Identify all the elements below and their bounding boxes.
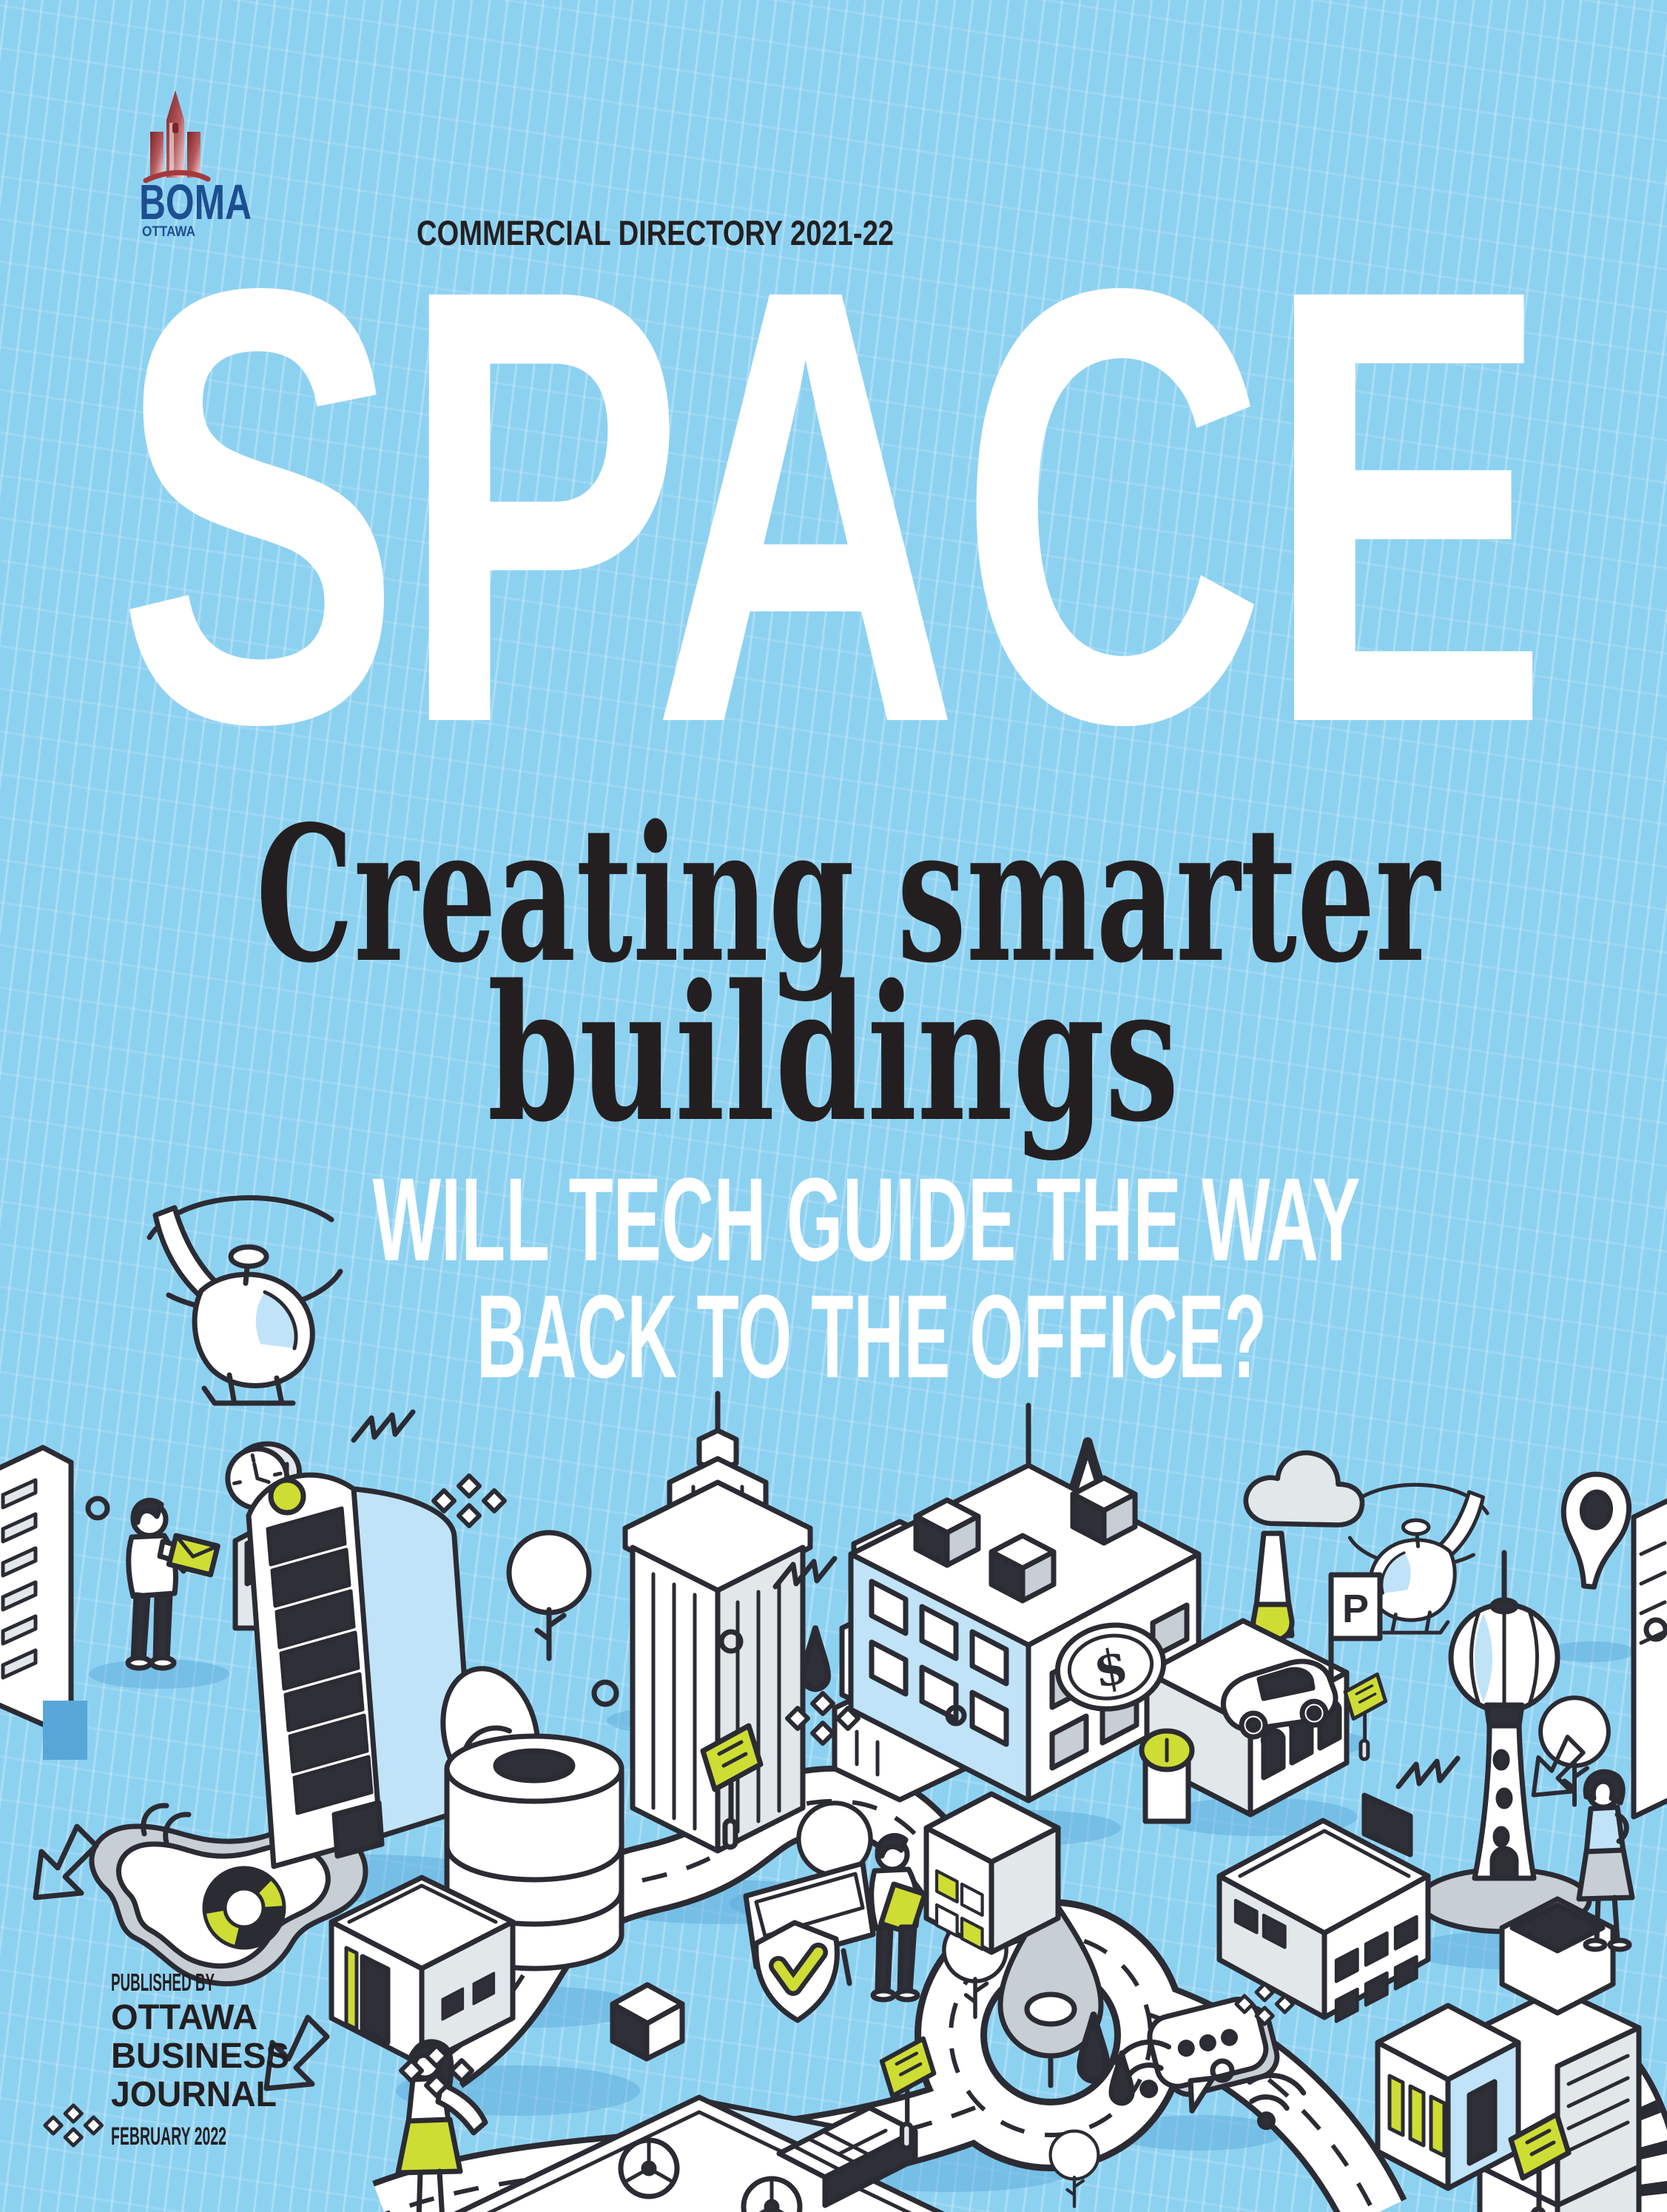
publisher-name-line2: BUSINESS (111, 2037, 289, 2076)
publisher-block: PUBLISHED BY OTTAWA BUSINESS JOURNAL FEB… (111, 1969, 289, 2151)
publisher-name-line3: JOURNAL (111, 2075, 277, 2114)
subhead-line2: BACK TO THE OFFICE? (476, 1270, 1267, 1402)
headline-line2: buildings (488, 944, 1179, 1163)
masthead: SPACE (118, 160, 1549, 852)
subhead-line1: WILL TECH GUIDE THE WAY (373, 1153, 1361, 1285)
publisher-label: PUBLISHED BY (111, 1969, 215, 1996)
magazine-cover: P $ (0, 0, 1667, 2212)
publisher-issue: FEBRUARY 2022 (111, 2122, 226, 2151)
publisher-name-line1: OTTAWA (111, 1998, 257, 2037)
